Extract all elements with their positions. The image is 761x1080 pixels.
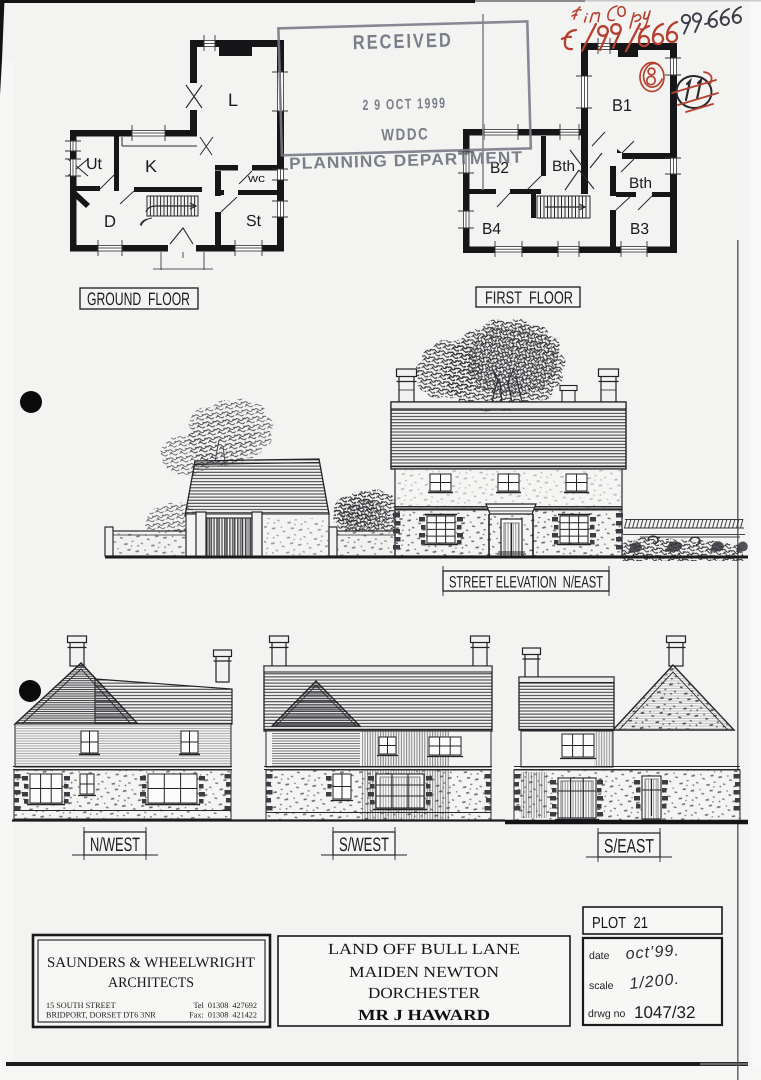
- svg-text:Bth: Bth: [629, 175, 652, 192]
- svg-text:K: K: [145, 157, 158, 176]
- svg-text:N/WEST: N/WEST: [90, 834, 140, 856]
- svg-text:MR J HAWARD: MR J HAWARD: [358, 1007, 490, 1024]
- svg-text:ARCHITECTS: ARCHITECTS: [108, 975, 194, 991]
- svg-text:1047/32: 1047/32: [634, 1003, 695, 1022]
- svg-text:2 9 OCT 1999: 2 9 OCT 1999: [362, 96, 446, 114]
- svg-text:WDDC: WDDC: [381, 125, 429, 144]
- svg-text:DORCHESTER: DORCHESTER: [368, 985, 481, 1002]
- svg-text:date: date: [589, 950, 610, 962]
- svg-text:B1: B1: [612, 96, 632, 115]
- svg-text:MAIDEN NEWTON: MAIDEN NEWTON: [349, 964, 499, 981]
- svg-text:STREET ELEVATION N/EAST: STREET ELEVATION N/EAST: [449, 574, 603, 592]
- svg-text:Ut: Ut: [86, 156, 103, 173]
- svg-text:S/EAST: S/EAST: [604, 836, 654, 858]
- svg-text:B4: B4: [482, 221, 501, 238]
- svg-text:Fax: 01308 421422: Fax: 01308 421422: [189, 1011, 257, 1020]
- svg-text:St: St: [246, 213, 262, 230]
- svg-text:Bth: Bth: [552, 158, 575, 175]
- svg-text:drwg no: drwg no: [588, 1008, 626, 1020]
- svg-text:PLOT 21: PLOT 21: [592, 915, 648, 932]
- svg-text:L: L: [228, 90, 238, 110]
- svg-text:15 SOUTH STREET: 15 SOUTH STREET: [46, 1001, 116, 1010]
- svg-text:BRIDPORT, DORSET DT6 3NR: BRIDPORT, DORSET DT6 3NR: [46, 1011, 156, 1020]
- svg-text:GROUND FLOOR: GROUND FLOOR: [87, 289, 190, 309]
- svg-text:D: D: [104, 212, 116, 231]
- svg-text:RECEIVED: RECEIVED: [353, 30, 454, 55]
- svg-text:scale: scale: [589, 980, 614, 992]
- svg-text:FIRST FLOOR: FIRST FLOOR: [485, 288, 573, 308]
- svg-text:SAUNDERS & WHEELWRIGHT: SAUNDERS & WHEELWRIGHT: [47, 955, 255, 971]
- svg-text:B3: B3: [630, 221, 649, 238]
- svg-text:S/WEST: S/WEST: [339, 834, 389, 856]
- svg-text:Tel 01308 427692: Tel 01308 427692: [193, 1001, 257, 1010]
- svg-text:LAND OFF BULL LANE: LAND OFF BULL LANE: [328, 941, 520, 958]
- svg-text:wc: wc: [247, 173, 266, 185]
